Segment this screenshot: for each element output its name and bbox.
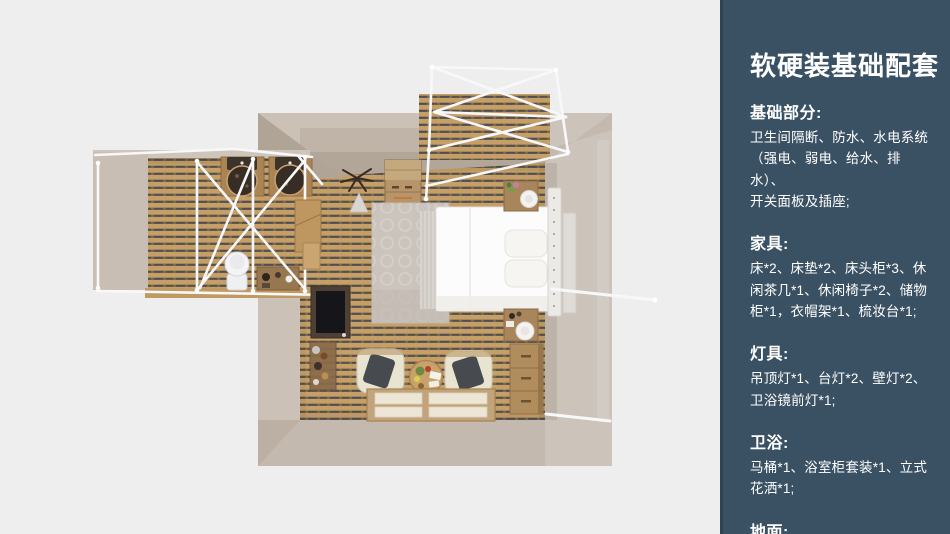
spec-heading: 地面: [750,518,934,534]
bathroom-storage-shelf [257,267,299,290]
rod-end [653,298,658,303]
spec-heading: 家具: [750,230,934,254]
spec-heading: 基础部分: [750,99,934,123]
panel-title: 软硬装基础配套 [750,46,934,83]
spec-section-flooring: 地面: 强化木地板、卫生间防滑防潮 石塑板; [750,518,934,534]
drawer-dresser [510,344,543,414]
bed-duvet [436,207,552,311]
toilet [225,252,249,290]
spec-heading: 灯具: [750,340,934,364]
lounge-chair-left [357,349,404,393]
bed [420,188,561,316]
spec-body: 吊顶灯*1、台灯*2、壁灯*2、 卫浴镜前灯*1; [750,368,934,411]
spec-body: 卫生间隔断、防水、水电系统 （强电、弱电、给水、排水）、 开关面板及插座; [750,127,934,212]
pillow [505,230,547,257]
floorplan-area [0,0,720,534]
spec-heading: 卫浴: [750,429,934,453]
nightstand-bottom [504,309,538,341]
spec-body: 马桶*1、浴室柜套装*1、立式 花洒*1; [750,457,934,500]
spec-body: 床*2、床垫*2、床头柜*3、休 闲茶几*1、休闲椅子*2、储物 柜*1，衣帽架… [750,258,934,322]
slide: 软硬装基础配套 基础部分: 卫生间隔断、防水、水电系统 （强电、弱电、给水、排水… [0,0,950,534]
lounge-chair-right [445,351,492,394]
spec-section-bathroom: 卫浴: 马桶*1、浴室柜套装*1、立式 花洒*1; [750,429,934,500]
headboard [548,188,561,316]
pillow [505,260,547,287]
plant-shelf [310,342,336,390]
spec-section-lighting: 灯具: 吊顶灯*1、台灯*2、壁灯*2、 卫浴镜前灯*1; [750,340,934,411]
floorplan-render [0,0,720,534]
wardrobe-cabinet [385,160,421,206]
nightstand-top [504,181,538,211]
spec-section-furniture: 家具: 床*2、床垫*2、床头柜*3、休 闲茶几*1、休闲椅子*2、储物 柜*1… [750,230,934,322]
window-bench [367,389,495,421]
bathroom-left-wall [93,152,148,290]
spec-panel: 软硬装基础配套 基础部分: 卫生间隔断、防水、水电系统 （强电、弱电、给水、排水… [720,0,950,534]
spec-section-basics: 基础部分: 卫生间隔断、防水、水电系统 （强电、弱电、给水、排水）、 开关面板及… [750,99,934,212]
mirror-panel [563,213,576,313]
tv-cabinet [311,286,350,338]
